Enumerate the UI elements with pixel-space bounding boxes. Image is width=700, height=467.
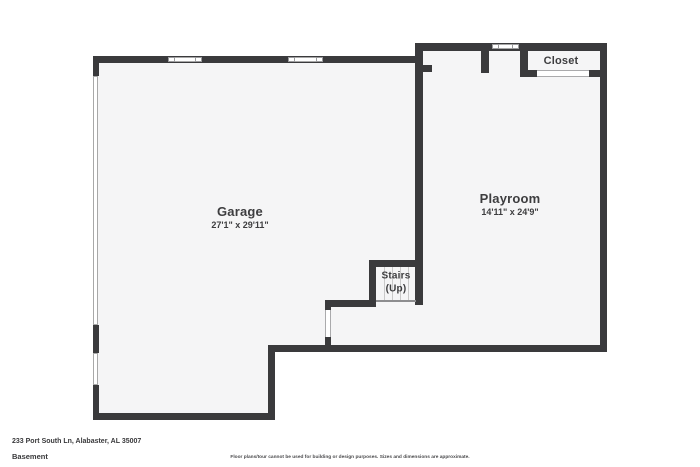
wall-corridor bbox=[325, 300, 376, 307]
wall-stairs-top bbox=[369, 260, 423, 267]
wall-left-top bbox=[93, 56, 99, 76]
wall-right bbox=[600, 43, 607, 352]
stairs-entry-line bbox=[376, 300, 416, 302]
garage-dimensions: 27'1" x 29'11" bbox=[211, 220, 268, 230]
property-address: 233 Port South Ln, Alabaster, AL 35007 bbox=[12, 438, 141, 445]
closet-name: Closet bbox=[544, 55, 579, 67]
garage-name: Garage bbox=[211, 204, 268, 219]
floor-level-label: Basement bbox=[12, 452, 48, 461]
wall-garage-bottom bbox=[93, 413, 275, 420]
floor-plan: Garage 27'1" x 29'11" Playroom 14'11" x … bbox=[0, 0, 700, 467]
playroom-label: Playroom 14'11" x 24'9" bbox=[480, 191, 541, 217]
garage-floor-lower bbox=[96, 59, 272, 417]
garage-window-1 bbox=[168, 57, 202, 62]
wall-stairs-bottom-stub-right bbox=[416, 298, 423, 305]
wall-nook-stub bbox=[423, 65, 432, 72]
wall-door-stub-bottom bbox=[325, 337, 331, 352]
disclaimer-text: Floor plans/tour cannot be used for buil… bbox=[230, 455, 469, 460]
garage-window-2 bbox=[288, 57, 323, 62]
playroom-name: Playroom bbox=[480, 191, 541, 206]
garage-label: Garage 27'1" x 29'11" bbox=[211, 204, 268, 230]
closet-door-opening bbox=[537, 70, 589, 77]
wall-left-bottom bbox=[93, 385, 99, 420]
left-wall-window-long bbox=[93, 76, 98, 325]
wall-door-stub-top bbox=[325, 300, 331, 310]
wall-closet-bottom-left bbox=[520, 70, 537, 77]
wall-garage-top bbox=[93, 56, 415, 63]
wall-closet-bottom-right bbox=[589, 70, 607, 77]
wall-jog bbox=[268, 345, 275, 420]
wall-nook-hanging bbox=[481, 43, 489, 73]
garage-door-opening bbox=[325, 310, 331, 337]
stairs-name: Stairs bbox=[382, 271, 411, 284]
stairs-direction: (Up) bbox=[382, 283, 411, 296]
playroom-window bbox=[492, 44, 519, 49]
playroom-dimensions: 14'11" x 24'9" bbox=[480, 207, 541, 217]
wall-left-mid bbox=[93, 325, 99, 353]
stairs-label: Stairs (Up) bbox=[382, 271, 411, 296]
left-wall-window-short bbox=[93, 353, 98, 385]
closet-label: Closet bbox=[544, 55, 579, 67]
wall-bottom-right bbox=[268, 345, 607, 352]
